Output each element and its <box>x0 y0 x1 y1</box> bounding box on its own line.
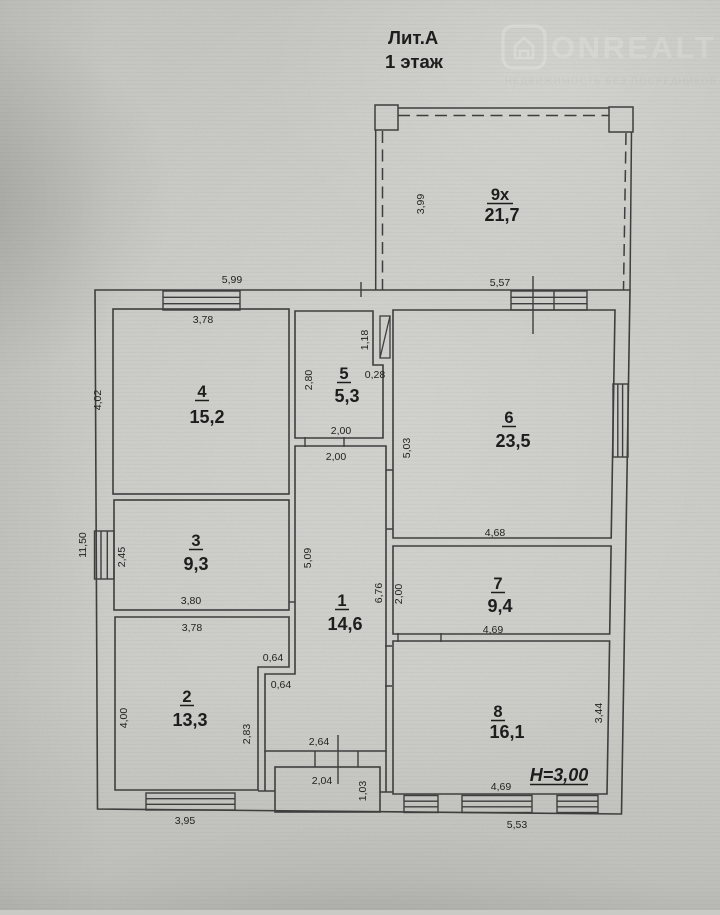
svg-text:5,03: 5,03 <box>401 438 413 459</box>
svg-text:3,78: 3,78 <box>193 314 214 326</box>
svg-text:9,3: 9,3 <box>183 554 208 574</box>
svg-text:11,50: 11,50 <box>77 532 89 558</box>
svg-text:3,99: 3,99 <box>415 194 427 215</box>
svg-text:1,03: 1,03 <box>357 781 369 802</box>
svg-text:6: 6 <box>504 409 513 427</box>
svg-text:2,45: 2,45 <box>116 547 128 568</box>
svg-text:2,00: 2,00 <box>331 425 352 437</box>
svg-text:3,95: 3,95 <box>175 815 196 827</box>
svg-text:0,64: 0,64 <box>271 679 292 691</box>
svg-text:2: 2 <box>182 688 191 706</box>
svg-text:Лит.А: Лит.А <box>388 27 438 48</box>
svg-text:2,64: 2,64 <box>309 736 330 748</box>
svg-text:5,09: 5,09 <box>302 548 314 569</box>
svg-text:13,3: 13,3 <box>172 710 207 730</box>
svg-text:4,02: 4,02 <box>92 390 104 411</box>
svg-text:2,04: 2,04 <box>312 775 333 787</box>
svg-text:2,83: 2,83 <box>241 724 253 745</box>
svg-text:2,00: 2,00 <box>326 451 347 463</box>
svg-text:6,76: 6,76 <box>373 583 385 604</box>
svg-text:7: 7 <box>493 575 502 593</box>
svg-text:16,1: 16,1 <box>489 722 524 742</box>
svg-text:5,3: 5,3 <box>334 386 359 406</box>
svg-text:1 этаж: 1 этаж <box>385 51 444 72</box>
svg-text:9,4: 9,4 <box>487 596 512 616</box>
svg-text:1: 1 <box>337 592 346 610</box>
svg-text:3,44: 3,44 <box>593 703 605 724</box>
svg-text:0,28: 0,28 <box>365 369 386 381</box>
svg-text:5,99: 5,99 <box>222 274 243 286</box>
svg-text:21,7: 21,7 <box>484 205 519 225</box>
svg-text:3: 3 <box>191 532 200 550</box>
svg-text:5,53: 5,53 <box>507 819 528 831</box>
svg-text:4,00: 4,00 <box>118 708 130 729</box>
svg-text:15,2: 15,2 <box>189 407 224 427</box>
svg-text:4: 4 <box>197 383 207 401</box>
svg-text:5: 5 <box>339 365 348 383</box>
svg-text:1,18: 1,18 <box>359 330 371 351</box>
svg-text:23,5: 23,5 <box>495 431 530 451</box>
svg-text:2,80: 2,80 <box>303 370 315 391</box>
svg-text:0,64: 0,64 <box>263 652 284 664</box>
svg-text:НЕДВИЖИМОСТЬ БЕЗ ПОСРЕДНИКОВ: НЕДВИЖИМОСТЬ БЕЗ ПОСРЕДНИКОВ <box>505 76 717 87</box>
svg-text:3,78: 3,78 <box>182 622 203 634</box>
svg-text:2,00: 2,00 <box>393 584 405 605</box>
svg-text:4,69: 4,69 <box>491 781 512 793</box>
svg-text:5,57: 5,57 <box>490 277 511 289</box>
svg-text:4,69: 4,69 <box>483 624 504 636</box>
svg-text:8: 8 <box>493 703 502 721</box>
svg-text:14,6: 14,6 <box>327 614 362 634</box>
svg-text:H=3,00: H=3,00 <box>530 765 589 785</box>
svg-text:3,80: 3,80 <box>181 595 202 607</box>
svg-text:9х: 9х <box>491 186 510 204</box>
svg-text:ONREALT: ONREALT <box>551 30 716 65</box>
svg-text:4,68: 4,68 <box>485 527 506 539</box>
